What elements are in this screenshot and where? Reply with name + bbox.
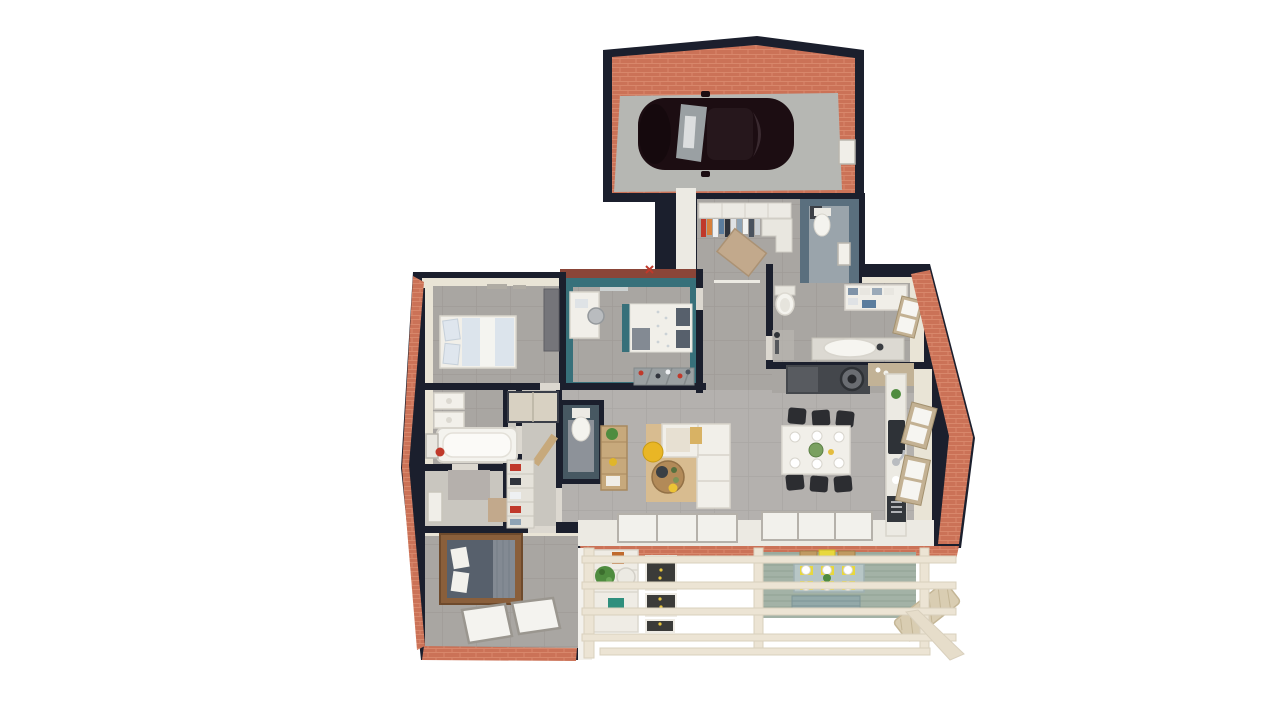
car-hood-shade [639,104,671,164]
oval-sink [824,339,876,357]
utility-wall-frame [838,243,850,265]
sofa-cushion [666,428,690,452]
bedroom1-wall-left [425,286,433,384]
hall-gray-panel [448,470,490,500]
ceiling-lamp-bar [600,287,628,291]
ceiling-vent-2 [513,285,526,289]
yellow-bowl [669,484,678,493]
table-centerpiece [823,574,831,582]
door-gap-hall-left [452,464,478,471]
utility-room [800,199,859,283]
bed-2 [622,304,692,352]
shower-corner [772,330,794,360]
salad-bowl [809,443,823,457]
desk-chair [588,308,604,324]
pillow-dark-1 [676,308,690,326]
pillow-dark-2 [676,330,690,348]
island-counter [886,374,906,536]
coffee-table [652,461,684,493]
pillow-1 [443,319,461,341]
car-mirror-bottom [701,171,710,177]
floorplan-render [0,0,1280,720]
pillow-3a [450,547,469,569]
garage-wall-niche [839,140,855,164]
red-towel [436,448,445,457]
terrace [578,548,964,660]
pillow-3b [451,571,470,593]
shoe-shelf [634,368,694,385]
sliding-door-a [618,514,737,542]
car [638,91,794,177]
dresser-1 [544,289,559,351]
wall-v-bed2-hall [696,269,703,393]
hallway-tiles [702,283,772,395]
door-gap-bathroom1 [766,336,773,360]
car-mirror-top [701,91,710,97]
utility-wall-right [849,199,859,283]
plant-pot [891,389,901,399]
desk-2 [570,292,604,338]
door-gap-bedroom2 [696,288,703,310]
console-plant [606,428,618,440]
bed-1 [440,316,516,368]
console-books [606,476,620,486]
tray [656,466,668,478]
butter-dish [828,449,834,455]
toilet-1 [775,286,795,315]
utility-wall-top [800,199,859,206]
car-roof [707,108,753,160]
console-bowl [609,458,617,466]
wall-v-bed1-bed2 [559,272,566,390]
dining-area [782,407,855,493]
utility-toilet [814,214,830,236]
hall-console [601,426,627,490]
floorplan-svg [0,0,1280,720]
door-gap-closet [556,488,562,522]
bedroom2-wall-top [562,278,702,287]
vanity [812,338,904,360]
washer-door [848,375,857,384]
towel-cabinet [845,285,907,310]
bed3-throw [493,540,515,598]
bed-3 [440,534,522,604]
bathtub [437,428,517,462]
sliding-door-b [762,512,872,540]
car-glint [683,116,696,149]
sofa-throw [690,427,702,444]
pillow-2 [443,343,460,364]
bed-throw [632,328,650,350]
counter-item [876,368,881,373]
counter-north-left [788,367,818,392]
garage [603,36,864,202]
bed-runner [480,318,495,366]
dark-screens [646,556,676,632]
hall-door [428,492,442,522]
bedroom2-brick-strip [560,269,702,278]
wc-toilet [572,417,590,441]
door-gap-bedroom1 [540,383,560,390]
vanity-faucet [877,344,884,351]
ceiling-vent-1 [487,284,507,289]
brick-bedroom3-south [422,646,577,661]
pouf [643,442,663,462]
tub-basin [443,433,511,457]
closet-shelves [507,460,534,528]
bed-bench [622,304,630,352]
utility-wall-left [800,199,809,283]
living-room [643,424,730,508]
laptop [575,299,588,308]
